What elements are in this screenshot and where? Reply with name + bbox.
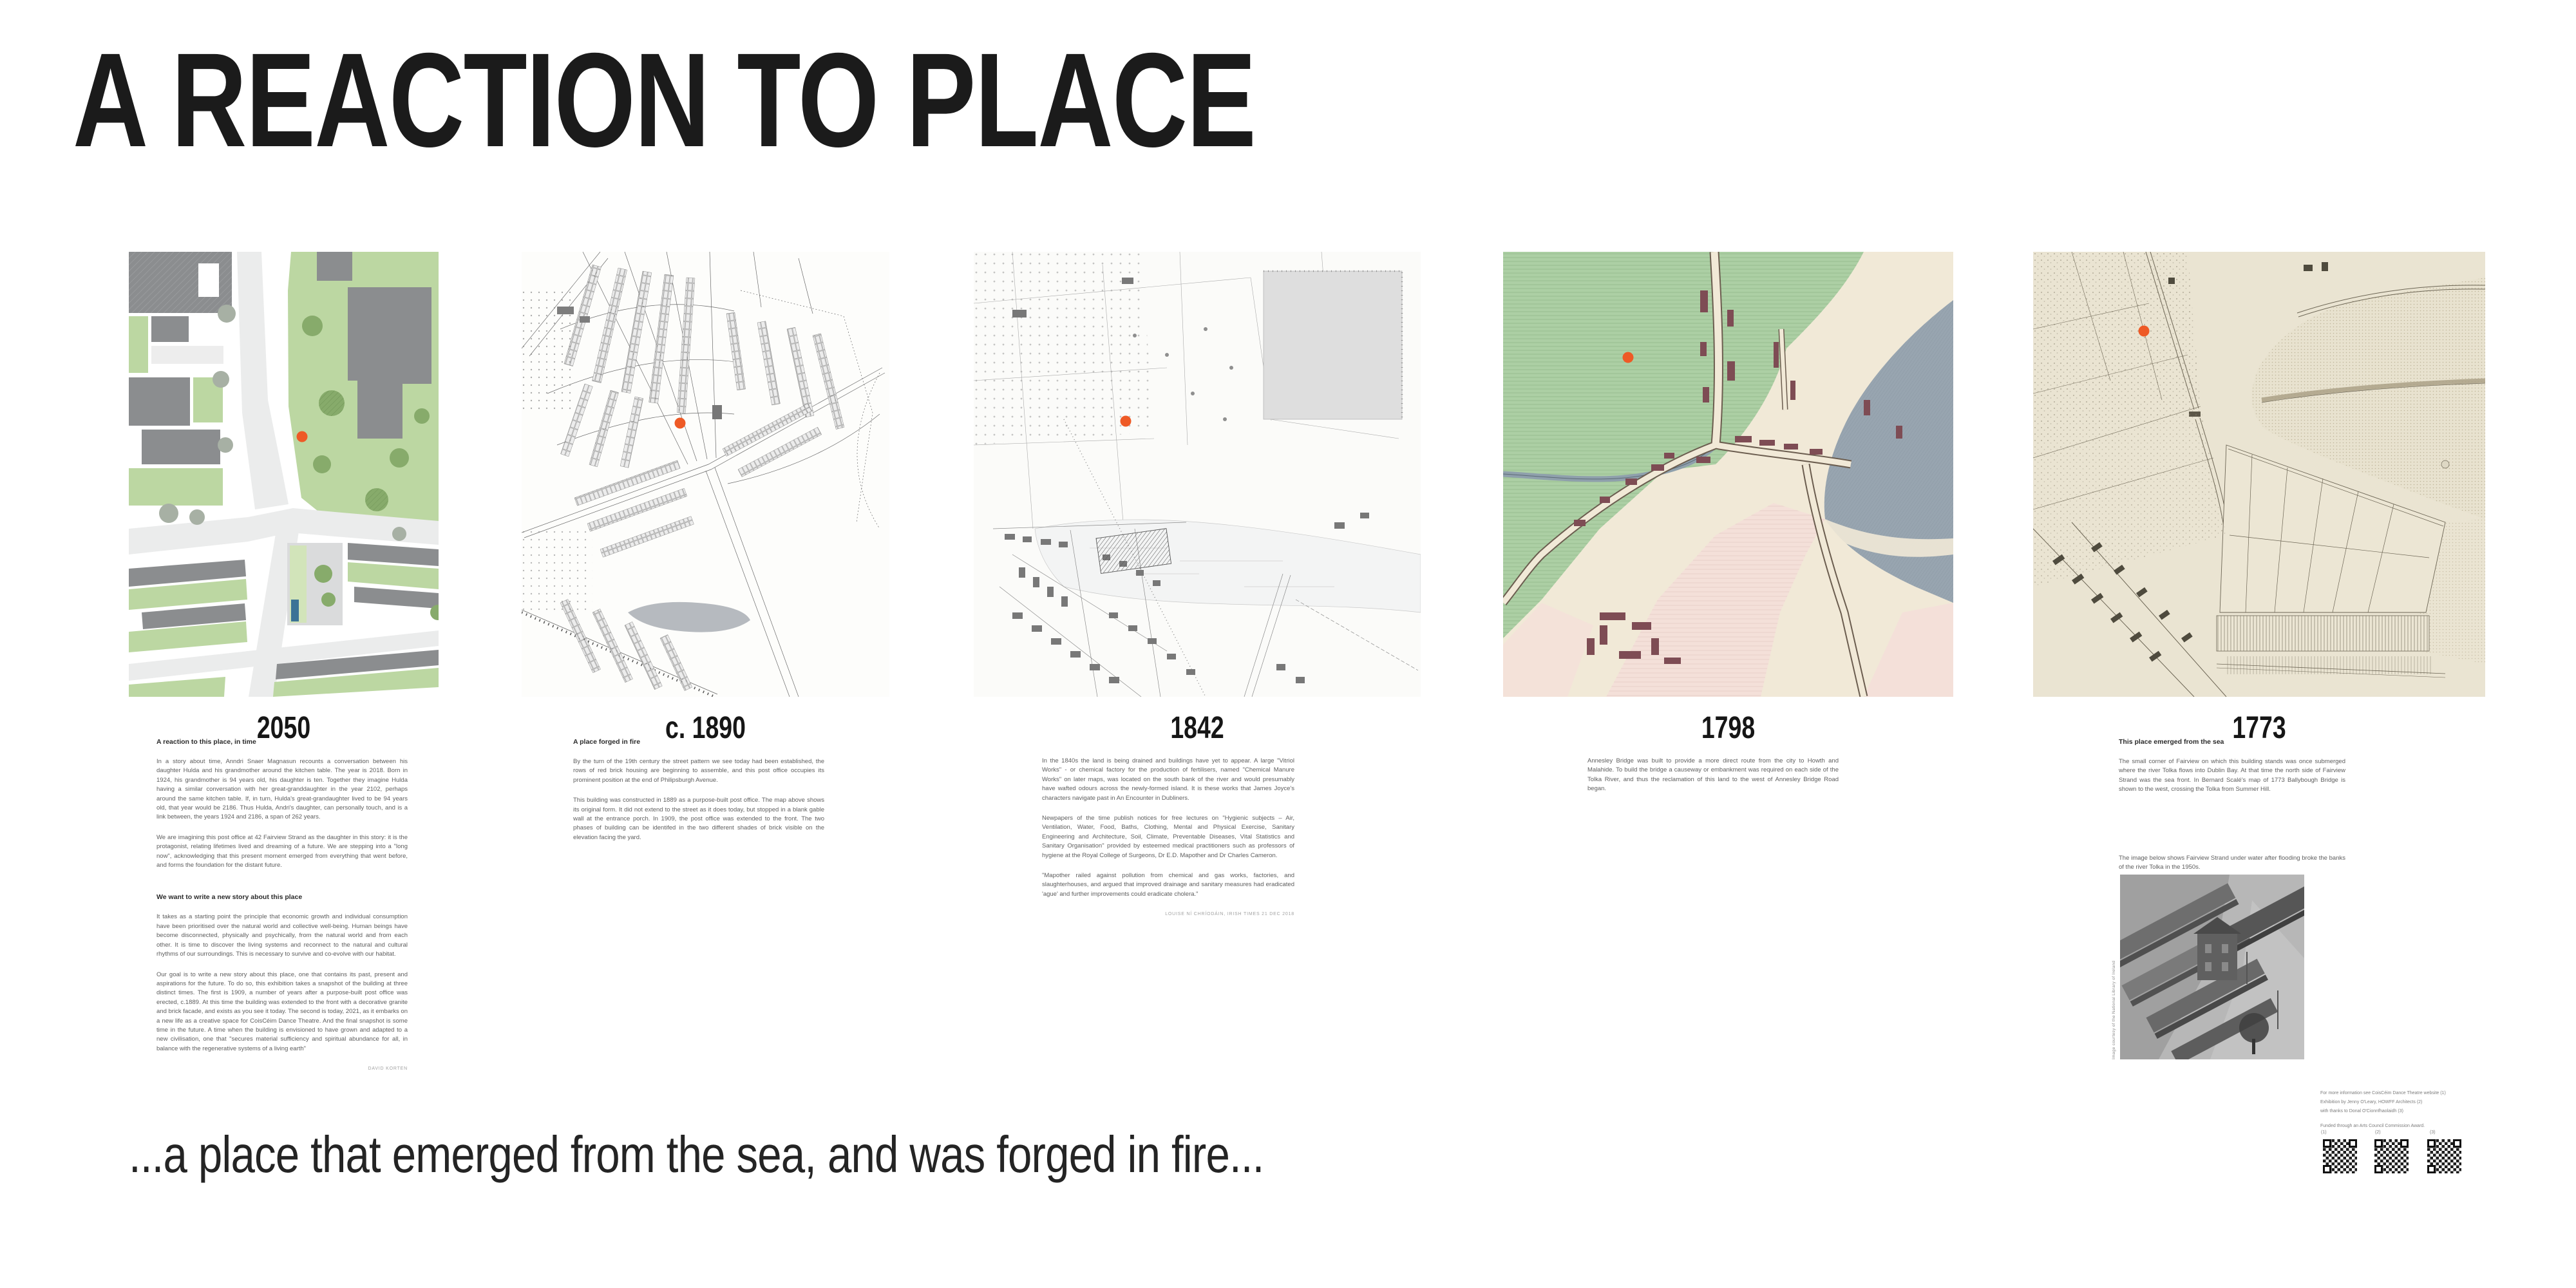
page-title: A REACTION TO PLACE — [73, 33, 1255, 167]
panel-1773: 1773 This place emerged from the sea The… — [2033, 252, 2485, 1256]
credit-line: with thanks to Donal O'Cionnfhaolaidh (3… — [2320, 1107, 2488, 1116]
body-paragraph: This building was constructed in 1889 as… — [573, 796, 824, 842]
text-column: This place emerged from the sea The smal… — [2119, 738, 2345, 883]
body-paragraph: It takes as a starting point the princip… — [156, 913, 408, 959]
map-annotations — [1503, 252, 1953, 697]
body-paragraph: The small corner of Fairview on which th… — [2119, 757, 2345, 795]
qr-code-1 — [2323, 1139, 2357, 1173]
body-paragraph: By the turn of the 19th century the stre… — [573, 757, 824, 785]
section-heading: We want to write a new story about this … — [156, 893, 408, 902]
flood-photo — [2120, 875, 2304, 1059]
qr-label-3: (3) — [2430, 1130, 2436, 1135]
qr-label-1: (1) — [2321, 1130, 2327, 1135]
map-2050 — [129, 252, 439, 697]
qr-label-2: (2) — [2375, 1130, 2381, 1135]
section-heading: This place emerged from the sea — [2119, 738, 2345, 746]
panel-2050: 2050 A reaction to this place, in time I… — [129, 252, 439, 1256]
photo-credit: Image courtesy of the National Library o… — [2112, 875, 2116, 1059]
section-heading: A reaction to this place, in time — [156, 738, 408, 746]
funding-line: Funded through an Arts Council Commissio… — [2320, 1122, 2488, 1131]
map-annotations — [522, 252, 889, 697]
map-annotations — [129, 252, 439, 697]
site-marker — [2138, 325, 2149, 336]
site-marker — [674, 418, 685, 429]
panel-1842: 1842 In the 1840s the land is being drai… — [974, 252, 1421, 1256]
credit-line: Exhibition by Jenny O'Leary, HOWFF Archi… — [2320, 1098, 2488, 1107]
site-marker — [297, 431, 308, 442]
attribution: DAVID KORTEN — [156, 1065, 408, 1074]
section-heading: A place forged in fire — [573, 738, 824, 746]
photo-intro-paragraph: The image below shows Fairview Strand un… — [2119, 854, 2345, 873]
text-column: A reaction to this place, in time In a s… — [156, 738, 408, 1074]
credit-line: For more information see CoisCéim Dance … — [2320, 1089, 2488, 1098]
qr-code-2 — [2374, 1139, 2409, 1173]
body-paragraph: Annesley Bridge was built to provide a m… — [1587, 757, 1839, 794]
map-1890 — [522, 252, 889, 697]
site-marker — [1120, 415, 1131, 426]
body-paragraph: We are imagining this post office at 42 … — [156, 833, 408, 871]
text-column: In the 1840s the land is being drained a… — [1042, 738, 1294, 920]
credits-block: For more information see CoisCéim Dance … — [2320, 1089, 2488, 1131]
text-column: A place forged in fire By the turn of th… — [573, 738, 824, 853]
body-paragraph: Our goal is to write a new story about t… — [156, 971, 408, 1054]
map-annotations — [974, 252, 1421, 697]
text-column: Annesley Bridge was built to provide a m… — [1587, 738, 1839, 805]
map-1842 — [974, 252, 1421, 697]
body-paragraph: "Mapother railed against pollution from … — [1042, 871, 1294, 899]
site-marker — [1623, 352, 1634, 363]
map-1773 — [2033, 252, 2485, 697]
panel-1798: 1798 Annesley Bridge was built to provid… — [1503, 252, 1953, 1256]
tagline: ...a place that emerged from the sea, an… — [129, 1129, 1264, 1180]
map-annotations — [2033, 252, 2485, 697]
body-paragraph: In the 1840s the land is being drained a… — [1042, 757, 1294, 803]
panel-1890: c. 1890 A place forged in fire By the tu… — [522, 252, 889, 1256]
body-paragraph: Newpapers of the time publish notices fo… — [1042, 814, 1294, 860]
attribution: LOUISE NÍ CHRÍODÁIN, IRISH TIMES 21 DEC … — [1042, 910, 1294, 919]
qr-code-3 — [2427, 1139, 2461, 1173]
map-1798 — [1503, 252, 1953, 697]
exhibition-board: A REACTION TO PLACE — [0, 0, 2576, 1288]
body-paragraph: In a story about time, Anndri Snaer Magn… — [156, 757, 408, 822]
